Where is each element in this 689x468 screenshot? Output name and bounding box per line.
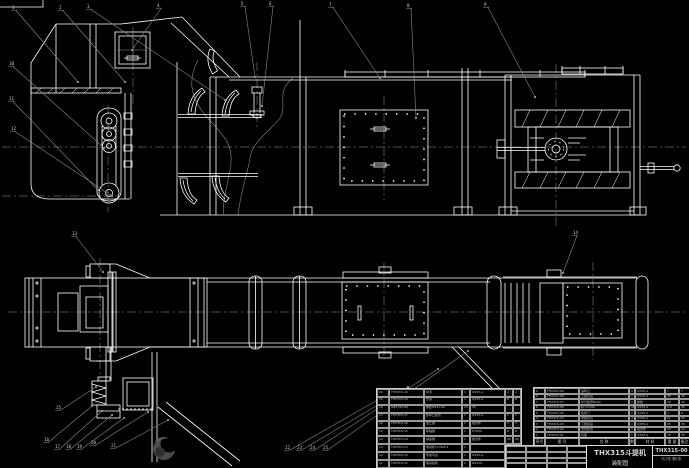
leader-end-dot [91, 405, 93, 407]
balloon-number: 23 [297, 445, 303, 450]
bom-cell: 组合件 [470, 421, 505, 429]
bom-cell: 传动平台 [424, 452, 462, 460]
leader-line [76, 237, 103, 273]
balloon-number: 2 [59, 5, 62, 10]
balloon-number: 19 [77, 444, 83, 449]
bom-cell: 支架 [424, 397, 462, 405]
product-title: THX315斗提机 [594, 448, 646, 458]
bom-table-left: 20THX315-20护罩1Q235-A4419THX315-19支架1Q235… [376, 388, 522, 468]
bom-table-right: 9THX315-09进料口1Q235-A778THX315-08上部区段1Q23… [533, 387, 689, 439]
bom-cell: 18 [377, 405, 389, 413]
bom-cell: 螺栓M12×40 [424, 405, 462, 413]
leader-end-dot [97, 189, 99, 191]
balloon-number: 13 [72, 231, 78, 236]
bom-cell: ZG310 [470, 460, 505, 468]
balloon-number: 25 [323, 445, 329, 450]
leader-line [563, 236, 577, 274]
sheet-name: 装配图 [612, 459, 629, 467]
bom-cell [505, 405, 513, 413]
bom-cell: Q235-A [470, 397, 505, 405]
leader-end-dot [261, 105, 263, 107]
bom-cell: GB5782-86 [389, 405, 424, 413]
bom-cell: 1 [462, 452, 470, 460]
bom-cell: 35 [470, 405, 505, 413]
plan-head [25, 264, 207, 361]
bom-cell: 卸料口接管 [424, 413, 462, 421]
leader-end-dot [467, 350, 469, 352]
drawing-number: THX315-00 [653, 448, 689, 456]
balloon-number: 3 [87, 4, 90, 9]
bom-cell: 1 [462, 389, 470, 397]
revision-grid [505, 445, 588, 468]
sheet-info: 共1张 第1张 [661, 457, 681, 462]
bom-cell: 组合件 [470, 436, 505, 444]
leader-line [411, 9, 416, 119]
drawing-number-cell: THX315-00 共1张 第1张 [652, 445, 689, 468]
bom-cell: 20 [377, 389, 389, 397]
balloon-number: 11 [9, 96, 15, 101]
bom-cell: 14 [377, 436, 389, 444]
leader-line [13, 102, 98, 191]
bom-cell: 24 [462, 405, 470, 413]
leader-end-dot [534, 96, 536, 98]
bom-cell: 电动机Y132M-4 [424, 444, 462, 452]
balloon-number: 24 [310, 445, 316, 450]
balloon-number: 15 [56, 405, 62, 410]
leader-line [262, 7, 273, 107]
balloon-number: 14 [573, 230, 579, 235]
balloon-number: 17 [55, 444, 61, 449]
bom-cell: 联轴器 [424, 428, 462, 436]
bom-cell: 5 [513, 413, 521, 421]
balloon-number: 4 [157, 3, 160, 8]
bom-cell: HT200 [470, 428, 505, 436]
bom-cell: 2 [462, 460, 470, 468]
bom-cell: THX315-19 [389, 397, 424, 405]
leader-end-dot [103, 147, 105, 149]
front-view [2, 17, 686, 226]
leader-line [488, 8, 535, 98]
bom-cell: 6 [513, 397, 521, 405]
bom-cell: THX315-20 [389, 389, 424, 397]
balloon-number: 16 [44, 437, 50, 442]
bom-cell: 1 [462, 436, 470, 444]
bom-cell [470, 444, 505, 452]
leader-line [95, 412, 148, 446]
leader-end-dot [562, 272, 564, 274]
leader-line [16, 11, 78, 83]
bom-cell: 19 [377, 397, 389, 405]
balloon-number: 10 [9, 61, 15, 66]
leader-end-dot [379, 77, 381, 79]
bom-cell: Q235-A [470, 452, 505, 460]
plan-access-door [342, 267, 428, 358]
balloon-number: 9 [484, 2, 487, 7]
bom-cell: 护罩 [424, 389, 462, 397]
bom-cell: 4 [513, 389, 521, 397]
balloon-number: 20 [91, 440, 97, 445]
leader-end-dot [101, 410, 103, 412]
bom-cell: THX315-17 [389, 413, 424, 421]
leader-end-dot [131, 49, 133, 51]
balloon-number: 8 [407, 3, 410, 8]
support-braces [452, 347, 503, 392]
balloon-number: 1 [12, 5, 15, 10]
bom-cell: 5 [505, 413, 513, 421]
leader-line [132, 9, 161, 51]
plan-boot [503, 270, 637, 355]
leader-end-dot [167, 419, 169, 421]
bom-cell: Q235-A [470, 389, 505, 397]
leader-end-dot [123, 417, 125, 419]
revision-cell [547, 463, 567, 468]
bom-cell: 3 [505, 421, 513, 429]
bom-cell: THX315-15 [389, 428, 424, 436]
leader-end-dot [124, 81, 126, 83]
bom-cell: 1 [462, 428, 470, 436]
leader-line [333, 8, 380, 79]
balloon-number: 5 [241, 1, 244, 6]
balloon-number: 12 [11, 126, 17, 131]
leader-end-dot [111, 195, 113, 197]
bom-cell: 13 [377, 444, 389, 452]
balloon-number: 22 [285, 445, 291, 450]
bom-cell: 45 [513, 436, 521, 444]
bom-cell: 17 [377, 413, 389, 421]
bom-cell: 6 [505, 397, 513, 405]
bom-cell: 16 [377, 421, 389, 429]
leader-end-dot [111, 414, 113, 416]
leader-end-dot [77, 81, 79, 83]
bom-cell [513, 405, 521, 413]
bom-cell: 8 [513, 428, 521, 436]
bom-cell: 驱动链轮 [424, 460, 462, 468]
bom-cell: 8 [505, 428, 513, 436]
bom-cell: THX315-11 [389, 460, 424, 468]
revision-cell [506, 463, 526, 468]
bom-cell: 15 [377, 428, 389, 436]
bom-cell: THX315-16 [389, 421, 424, 429]
boot-section [497, 66, 640, 215]
bom-cell: 减速器 [424, 436, 462, 444]
leader-end-dot [415, 117, 417, 119]
bom-cell: 1 [462, 397, 470, 405]
balloon-number: 7 [329, 2, 332, 7]
bom-cell: 12 [377, 452, 389, 460]
bom-cell: 逆止器 [424, 421, 462, 429]
leader-line [245, 7, 255, 78]
bom-cell: 4 [505, 389, 513, 397]
revision-cell [567, 463, 587, 468]
leader-end-dot [254, 76, 256, 78]
takeup-screw [640, 163, 680, 173]
leader-line [15, 132, 112, 197]
head-section [31, 17, 240, 199]
bom-cell: 1 [462, 421, 470, 429]
leader-end-dot [102, 271, 104, 273]
leader-line [63, 11, 125, 83]
bom-cell: 1 [462, 444, 470, 452]
balloon-number: 18 [66, 444, 72, 449]
balloon-number: 21 [111, 443, 117, 448]
leader-end-dot [147, 411, 149, 413]
leader-end-dot [95, 386, 97, 388]
bom-cell: 3 [513, 421, 521, 429]
revision-cell [526, 463, 546, 468]
leader-end-dot [437, 368, 439, 370]
bom-cell: THX315-12 [389, 452, 424, 460]
balloon-layer: 1234567891011121314151617181920212223242… [8, 1, 579, 451]
bom-cell: THX315-13 [389, 444, 424, 452]
frame-corner [0, 0, 43, 7]
bucket-belt [177, 47, 293, 215]
bom-cell: 45 [505, 436, 513, 444]
bom-cell: THX315-14 [389, 436, 424, 444]
leader-end-dot [224, 99, 226, 101]
cad-drawing-canvas: 1234567891011121314151617181920212223242… [0, 0, 689, 468]
balloon-number: 6 [269, 1, 272, 6]
bom-cell: Q235-A [470, 413, 505, 421]
title-block: THX315斗提机 装配图 [586, 445, 654, 468]
bom-cell: 1 [462, 413, 470, 421]
bom-cell: 11 [377, 460, 389, 468]
